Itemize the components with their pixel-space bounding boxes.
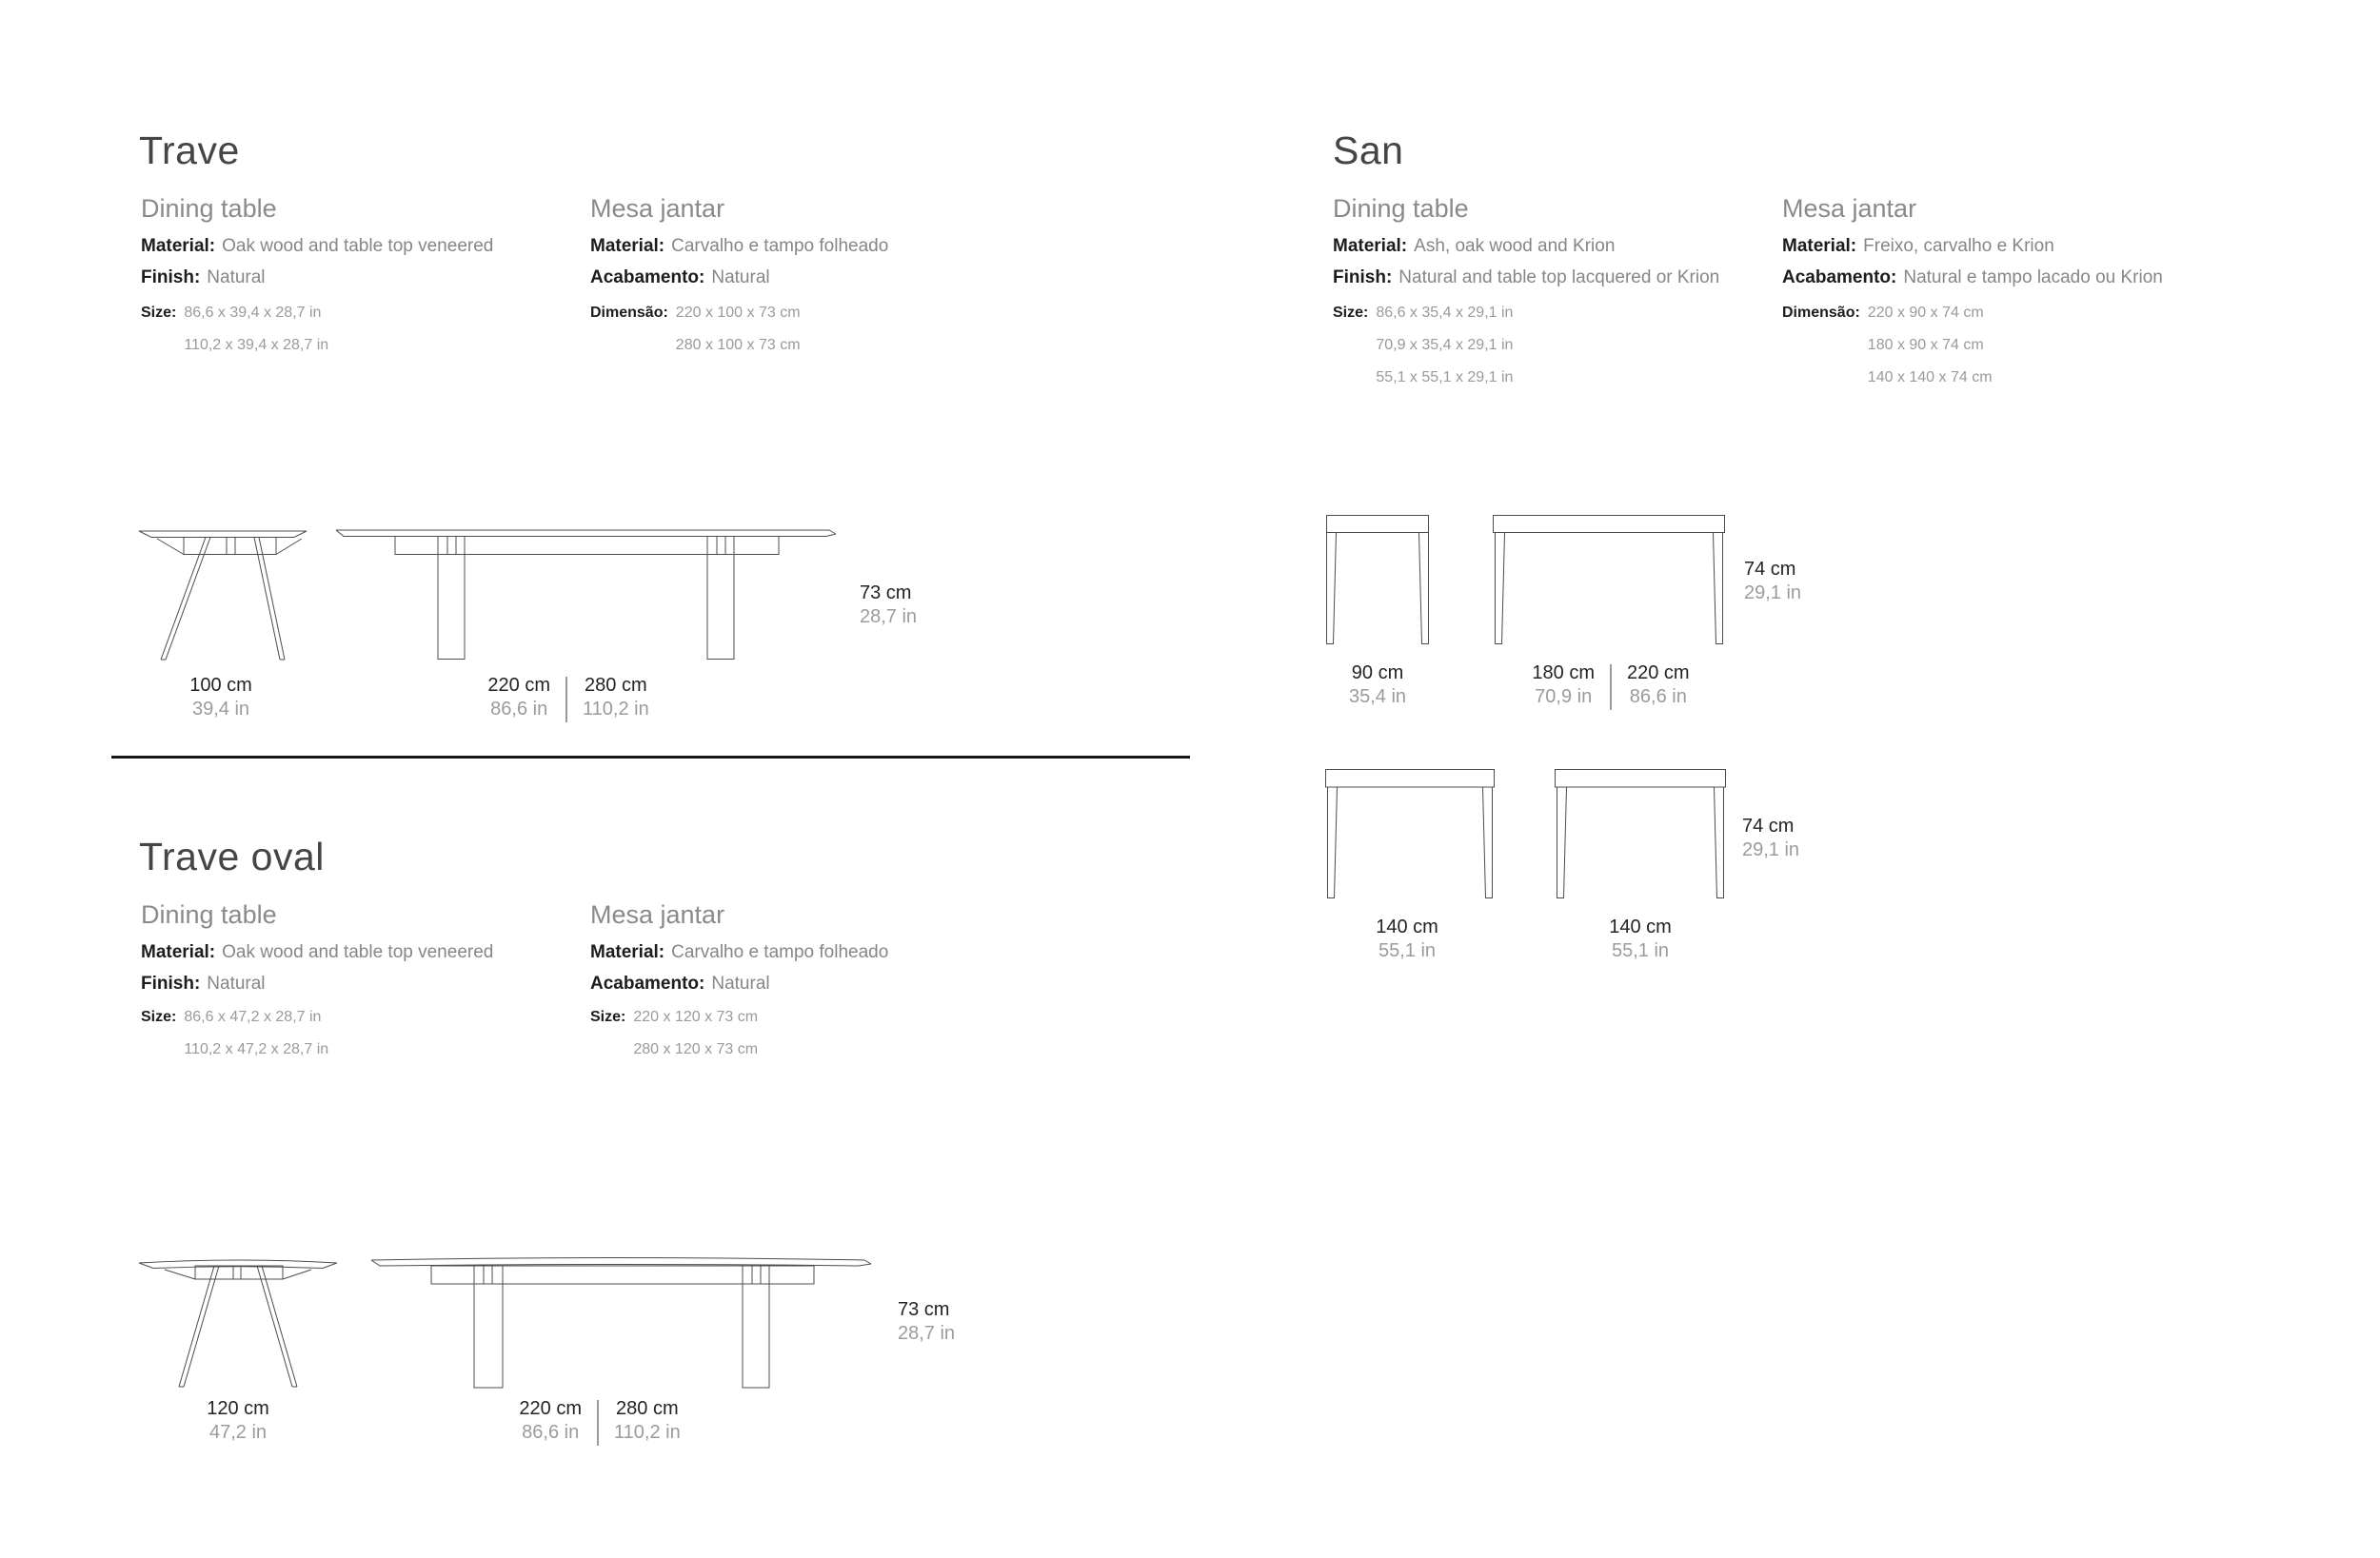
dimension-in: 55,1 in [1609, 939, 1672, 963]
dimension-cm: 74 cm [1744, 558, 1801, 582]
trave-oval-pt-subtitle: Mesa jantar [590, 899, 724, 930]
trave-en-finish: Finish:Natural [141, 266, 266, 290]
material-label: Material: [1333, 236, 1407, 256]
size-label: Size: [141, 297, 176, 362]
dimension-in: 86,6 in [487, 698, 550, 721]
trave-oval-pt-material: Material:Carvalho e tampo folheado [590, 940, 888, 965]
size-value: 220 x 90 x 74 cm [1868, 297, 1993, 329]
material-value: Oak wood and table top veneered [222, 942, 493, 962]
trave-pt-finish: Acabamento:Natural [590, 266, 770, 290]
dimension-in: 55,1 in [1376, 939, 1438, 963]
trave-end-view-drawing [138, 525, 307, 663]
san-height2-label: 74 cm 29,1 in [1742, 815, 1799, 862]
finish-label: Acabamento: [590, 267, 704, 287]
size-value: 86,6 x 35,4 x 29,1 in [1376, 297, 1513, 329]
trave-oval-height-label: 73 cm 28,7 in [898, 1298, 955, 1346]
dimension-cm: 140 cm [1376, 916, 1438, 939]
size-value: 55,1 x 55,1 x 29,1 in [1376, 362, 1513, 394]
size-value: 220 x 100 x 73 cm [676, 297, 801, 329]
trave-oval-en-material: Material:Oak wood and table top veneered [141, 940, 493, 965]
finish-label: Finish: [141, 974, 200, 994]
dimension-in: 86,6 in [519, 1421, 582, 1445]
san-length-b: 220 cm86,6 in [1627, 661, 1690, 709]
san-end-view-drawing [1326, 515, 1429, 644]
dimension-cm: 280 cm [583, 674, 649, 698]
trave-length-b: 280 cm110,2 in [583, 674, 649, 721]
trave-oval-pt-finish: Acabamento:Natural [590, 972, 770, 996]
dimension-cm: 100 cm [189, 674, 252, 698]
san-square-table-b-drawing [1555, 769, 1726, 898]
dimension-cm: 220 cm [519, 1397, 582, 1421]
finish-value: Natural e tampo lacado ou Krion [1903, 267, 2163, 287]
size-values: 86,6 x 39,4 x 28,7 in110,2 x 39,4 x 28,7… [184, 297, 328, 362]
san-square-table-a-drawing [1325, 769, 1495, 898]
finish-value: Natural [711, 267, 769, 287]
san-length-a: 180 cm70,9 in [1532, 661, 1595, 709]
size-value: 86,6 x 47,2 x 28,7 in [184, 1001, 328, 1034]
dimension-cm: 220 cm [1627, 661, 1690, 685]
dimension-cm: 74 cm [1742, 815, 1799, 838]
dimension-in: 70,9 in [1532, 685, 1595, 709]
size-label: Dimensão: [590, 297, 668, 362]
dimension-in: 86,6 in [1627, 685, 1690, 709]
dimension-cm: 180 cm [1532, 661, 1595, 685]
trave-title: Trave [139, 128, 240, 173]
size-value: 140 x 140 x 74 cm [1868, 362, 1993, 394]
dimension-in: 29,1 in [1742, 838, 1799, 862]
trave-pt-material: Material:Carvalho e tampo folheado [590, 234, 888, 259]
material-label: Material: [141, 942, 215, 962]
san-pt-sizes: Dimensão:220 x 90 x 74 cm180 x 90 x 74 c… [1782, 297, 1993, 394]
finish-value: Natural [207, 974, 265, 994]
dimension-cm: 90 cm [1349, 661, 1406, 685]
label-divider [1610, 664, 1612, 710]
size-label: Size: [590, 1001, 625, 1066]
dimension-in: 110,2 in [583, 698, 649, 721]
dimension-cm: 220 cm [487, 674, 550, 698]
san-square-b-label: 140 cm 55,1 in [1609, 916, 1672, 963]
material-value: Oak wood and table top veneered [222, 236, 493, 256]
trave-oval-length-b: 280 cm110,2 in [614, 1397, 681, 1445]
trave-width-label: 100 cm 39,4 in [189, 674, 252, 721]
size-value: 220 x 120 x 73 cm [633, 1001, 758, 1034]
trave-oval-title: Trave oval [139, 834, 325, 879]
san-pt-subtitle: Mesa jantar [1782, 193, 1916, 224]
san-en-sizes: Size:86,6 x 35,4 x 29,1 in70,9 x 35,4 x … [1333, 297, 1513, 394]
finish-label: Finish: [141, 267, 200, 287]
size-label: Dimensão: [1782, 297, 1860, 394]
trave-pt-sizes: Dimensão:220 x 100 x 73 cm280 x 100 x 73… [590, 297, 801, 362]
size-value: 280 x 100 x 73 cm [676, 329, 801, 362]
trave-en-subtitle: Dining table [141, 193, 277, 224]
san-en-subtitle: Dining table [1333, 193, 1469, 224]
trave-oval-width-label: 120 cm 47,2 in [207, 1397, 269, 1445]
material-label: Material: [590, 236, 664, 256]
size-label: Size: [141, 1001, 176, 1066]
dimension-in: 28,7 in [860, 605, 917, 629]
dimension-cm: 73 cm [860, 582, 917, 605]
dimension-in: 35,4 in [1349, 685, 1406, 709]
size-value: 180 x 90 x 74 cm [1868, 329, 1993, 362]
dimension-cm: 73 cm [898, 1298, 955, 1322]
material-label: Material: [1782, 236, 1856, 256]
trave-en-material: Material:Oak wood and table top veneered [141, 234, 493, 259]
material-label: Material: [590, 942, 664, 962]
material-value: Freixo, carvalho e Krion [1863, 236, 2054, 256]
catalog-page: Trave Dining table Material:Oak wood and… [0, 0, 2380, 1558]
finish-value: Natural [711, 974, 769, 994]
dimension-in: 28,7 in [898, 1322, 955, 1346]
size-label: Size: [1333, 297, 1368, 394]
material-value: Carvalho e tampo folheado [671, 942, 888, 962]
dimension-in: 110,2 in [614, 1421, 681, 1445]
size-values: 220 x 90 x 74 cm180 x 90 x 74 cm140 x 14… [1868, 297, 1993, 394]
size-value: 110,2 x 47,2 x 28,7 in [184, 1034, 328, 1066]
size-values: 220 x 120 x 73 cm280 x 120 x 73 cm [633, 1001, 758, 1066]
trave-oval-en-finish: Finish:Natural [141, 972, 266, 996]
trave-oval-en-sizes: Size:86,6 x 47,2 x 28,7 in110,2 x 47,2 x… [141, 1001, 328, 1066]
label-divider [597, 1400, 599, 1446]
dimension-in: 39,4 in [189, 698, 252, 721]
size-value: 70,9 x 35,4 x 29,1 in [1376, 329, 1513, 362]
size-value: 110,2 x 39,4 x 28,7 in [184, 329, 328, 362]
dimension-in: 29,1 in [1744, 582, 1801, 605]
dimension-in: 47,2 in [207, 1421, 269, 1445]
trave-pt-subtitle: Mesa jantar [590, 193, 724, 224]
dimension-cm: 280 cm [614, 1397, 681, 1421]
trave-length-a: 220 cm86,6 in [487, 674, 550, 721]
trave-side-view-drawing [336, 525, 836, 663]
material-value: Ash, oak wood and Krion [1414, 236, 1615, 256]
san-pt-finish: Acabamento:Natural e tampo lacado ou Kri… [1782, 266, 2163, 290]
finish-label: Acabamento: [1782, 267, 1896, 287]
material-value: Carvalho e tampo folheado [671, 236, 888, 256]
trave-oval-en-subtitle: Dining table [141, 899, 277, 930]
size-value: 280 x 120 x 73 cm [633, 1034, 758, 1066]
size-values: 86,6 x 47,2 x 28,7 in110,2 x 47,2 x 28,7… [184, 1001, 328, 1066]
trave-oval-pt-sizes: Size:220 x 120 x 73 cm280 x 120 x 73 cm [590, 1001, 758, 1066]
size-values: 86,6 x 35,4 x 29,1 in70,9 x 35,4 x 29,1 … [1376, 297, 1513, 394]
material-label: Material: [141, 236, 215, 256]
trave-en-sizes: Size:86,6 x 39,4 x 28,7 in110,2 x 39,4 x… [141, 297, 328, 362]
trave-oval-length-a: 220 cm86,6 in [519, 1397, 582, 1445]
size-values: 220 x 100 x 73 cm280 x 100 x 73 cm [676, 297, 801, 362]
finish-value: Natural [207, 267, 265, 287]
finish-value: Natural and table top lacquered or Krion [1398, 267, 1719, 287]
san-en-finish: Finish:Natural and table top lacquered o… [1333, 266, 1719, 290]
san-en-material: Material:Ash, oak wood and Krion [1333, 234, 1615, 259]
san-width-label: 90 cm 35,4 in [1349, 661, 1406, 709]
finish-label: Acabamento: [590, 974, 704, 994]
size-value: 86,6 x 39,4 x 28,7 in [184, 297, 328, 329]
san-pt-material: Material:Freixo, carvalho e Krion [1782, 234, 2054, 259]
san-square-a-label: 140 cm 55,1 in [1376, 916, 1438, 963]
san-height-label: 74 cm 29,1 in [1744, 558, 1801, 605]
section-divider-rule [111, 756, 1190, 759]
label-divider [565, 677, 567, 722]
trave-height-label: 73 cm 28,7 in [860, 582, 917, 629]
dimension-cm: 140 cm [1609, 916, 1672, 939]
trave-oval-end-view-drawing [138, 1254, 338, 1390]
dimension-cm: 120 cm [207, 1397, 269, 1421]
finish-label: Finish: [1333, 267, 1392, 287]
san-title: San [1333, 128, 1403, 173]
trave-oval-side-view-drawing [371, 1254, 871, 1390]
san-side-view-drawing [1493, 515, 1725, 644]
